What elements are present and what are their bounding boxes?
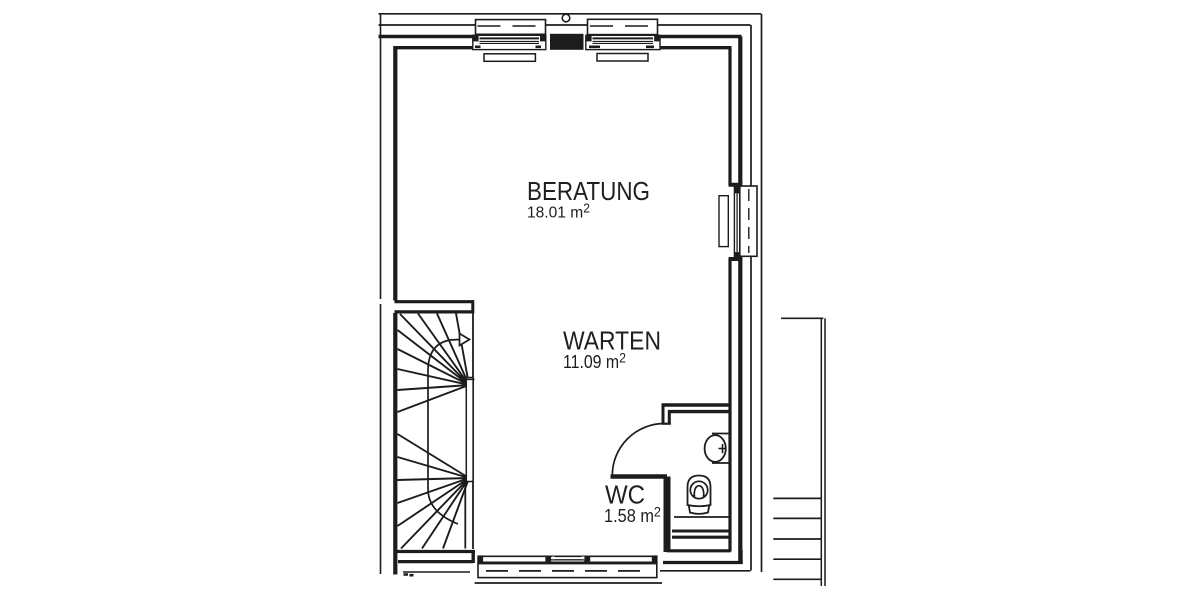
svg-text:18.01 m2: 18.01 m2 [527, 202, 590, 222]
svg-text:1.58 m2: 1.58 m2 [604, 504, 661, 527]
svg-text:11.09 m2: 11.09 m2 [563, 350, 626, 373]
svg-text:WARTEN: WARTEN [563, 326, 661, 356]
svg-text:WC: WC [605, 480, 645, 510]
